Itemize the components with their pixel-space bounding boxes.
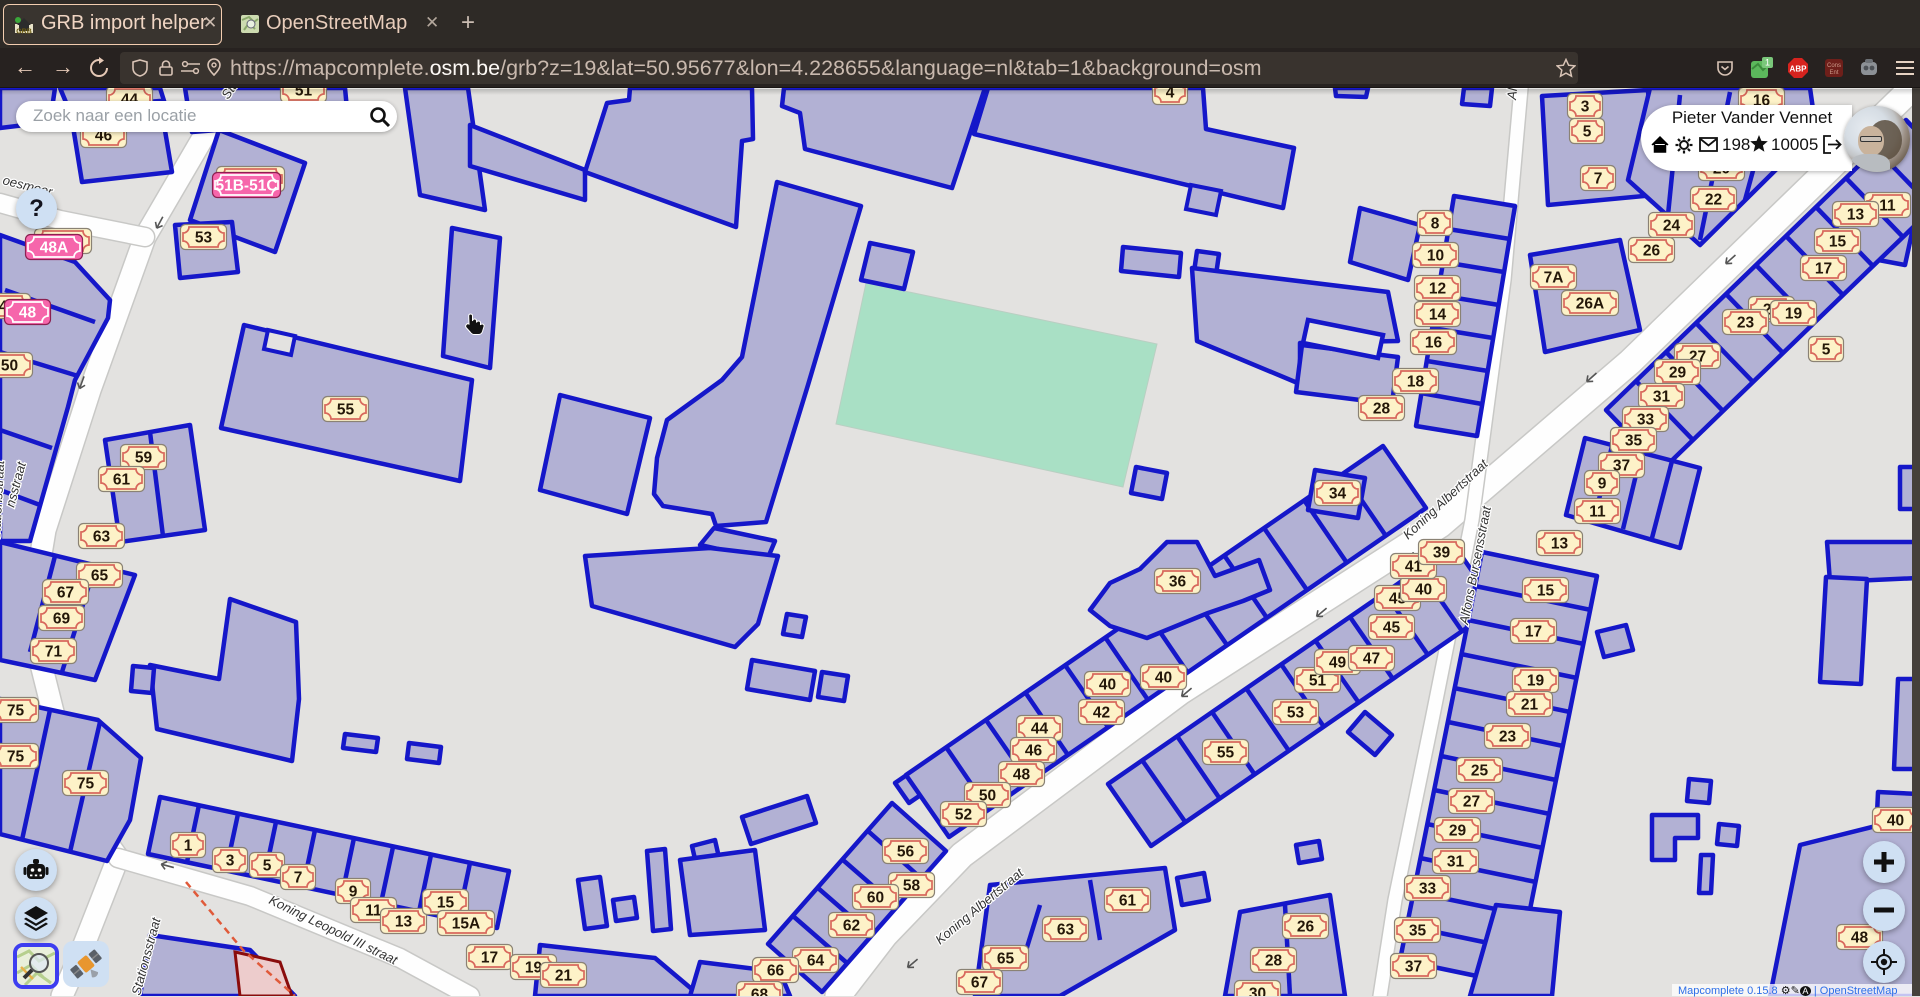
svg-text:56: 56 xyxy=(897,844,915,861)
svg-text:61: 61 xyxy=(113,472,131,489)
svg-text:13: 13 xyxy=(395,914,413,931)
svg-text:18: 18 xyxy=(1407,374,1425,391)
svg-text:22: 22 xyxy=(1705,192,1722,209)
svg-text:63: 63 xyxy=(93,529,111,546)
svg-text:50: 50 xyxy=(1,358,18,375)
svg-text:75: 75 xyxy=(77,776,95,793)
svg-text:46: 46 xyxy=(1025,743,1043,760)
svg-text:27: 27 xyxy=(1463,794,1480,811)
svg-text:29: 29 xyxy=(1449,823,1467,840)
svg-text:19: 19 xyxy=(525,960,543,977)
svg-text:30: 30 xyxy=(1249,986,1266,997)
svg-text:37: 37 xyxy=(1405,959,1422,976)
svg-text:11: 11 xyxy=(365,903,382,920)
svg-text:17: 17 xyxy=(1815,261,1832,278)
svg-text:59: 59 xyxy=(135,450,153,467)
svg-text:34: 34 xyxy=(1329,486,1347,503)
svg-text:75: 75 xyxy=(7,749,25,766)
svg-text:48: 48 xyxy=(19,305,37,322)
svg-text:11: 11 xyxy=(1879,198,1896,215)
svg-text:8: 8 xyxy=(1431,216,1440,233)
svg-text:36: 36 xyxy=(1169,574,1187,591)
svg-text:61: 61 xyxy=(1119,893,1137,910)
svg-text:9: 9 xyxy=(1598,476,1607,493)
svg-text:67: 67 xyxy=(57,585,74,602)
svg-text:52: 52 xyxy=(955,807,972,824)
svg-text:16: 16 xyxy=(1425,335,1443,352)
svg-text:45: 45 xyxy=(1383,620,1401,637)
svg-text:5: 5 xyxy=(1822,342,1831,359)
svg-text:17: 17 xyxy=(1525,624,1542,641)
svg-text:21: 21 xyxy=(1521,697,1539,714)
svg-text:65: 65 xyxy=(997,951,1015,968)
svg-text:53: 53 xyxy=(195,230,213,247)
svg-text:35: 35 xyxy=(1409,923,1427,940)
svg-text:11: 11 xyxy=(1589,504,1606,521)
svg-text:39: 39 xyxy=(1433,545,1451,562)
svg-text:26A: 26A xyxy=(1576,296,1604,313)
svg-text:66: 66 xyxy=(767,963,785,980)
svg-text:15: 15 xyxy=(1829,234,1847,251)
svg-text:23: 23 xyxy=(1499,729,1517,746)
svg-text:15A: 15A xyxy=(452,916,480,933)
svg-text:5: 5 xyxy=(263,858,272,875)
svg-text:12: 12 xyxy=(1429,281,1446,298)
svg-text:Cons: Cons xyxy=(1827,63,1841,69)
svg-text:198: 198 xyxy=(1722,135,1750,154)
svg-text:48: 48 xyxy=(1851,930,1869,947)
svg-text:44: 44 xyxy=(1031,721,1049,738)
svg-text:49: 49 xyxy=(1329,655,1347,672)
svg-text:35: 35 xyxy=(1625,433,1643,450)
svg-text:7: 7 xyxy=(1594,171,1603,188)
svg-text:31: 31 xyxy=(1447,854,1465,871)
svg-text:26: 26 xyxy=(1297,919,1315,936)
svg-text:25: 25 xyxy=(1471,763,1489,780)
svg-text:48A: 48A xyxy=(40,240,68,257)
svg-text:68: 68 xyxy=(751,987,769,997)
svg-text:28: 28 xyxy=(1373,401,1391,418)
svg-text:71: 71 xyxy=(45,644,63,661)
svg-text:40: 40 xyxy=(1415,582,1432,599)
svg-text:40: 40 xyxy=(1155,670,1172,687)
svg-text:33: 33 xyxy=(1419,881,1437,898)
svg-text:42: 42 xyxy=(1093,705,1110,722)
svg-text:60: 60 xyxy=(867,890,884,907)
svg-text:17: 17 xyxy=(481,950,498,967)
svg-text:4: 4 xyxy=(1166,88,1175,102)
svg-text:13: 13 xyxy=(1847,207,1865,224)
svg-text:55: 55 xyxy=(337,402,355,419)
svg-text:24: 24 xyxy=(1663,218,1681,235)
svg-text:Al: Al xyxy=(1504,88,1520,101)
svg-text:62: 62 xyxy=(843,918,860,935)
svg-text:53: 53 xyxy=(1287,705,1305,722)
svg-text:ABP: ABP xyxy=(1790,65,1808,74)
svg-text:Ent: Ent xyxy=(1829,70,1838,76)
svg-text:51B-51C: 51B-51C xyxy=(215,178,277,195)
svg-text:1: 1 xyxy=(1765,58,1770,68)
svg-text:26: 26 xyxy=(1643,243,1661,260)
svg-text:29: 29 xyxy=(1669,365,1687,382)
svg-text:3: 3 xyxy=(226,853,235,870)
svg-text:GRB: GRB xyxy=(16,29,32,36)
svg-text:14: 14 xyxy=(1429,307,1447,324)
svg-text:7A: 7A xyxy=(1544,270,1564,287)
svg-text:21: 21 xyxy=(555,968,573,985)
svg-text:15: 15 xyxy=(1537,583,1555,600)
svg-text:64: 64 xyxy=(807,953,825,970)
svg-text:10005: 10005 xyxy=(1771,135,1818,154)
svg-text:67: 67 xyxy=(971,975,988,992)
svg-text:58: 58 xyxy=(903,878,921,895)
svg-text:23: 23 xyxy=(1737,315,1755,332)
svg-text:48: 48 xyxy=(1013,767,1031,784)
svg-text:47: 47 xyxy=(1363,651,1380,668)
svg-text:3: 3 xyxy=(1581,99,1590,116)
svg-text:31: 31 xyxy=(1653,389,1671,406)
svg-text:5: 5 xyxy=(1583,124,1592,141)
svg-text:55: 55 xyxy=(1217,745,1235,762)
svg-text:19: 19 xyxy=(1527,673,1545,690)
svg-text:28: 28 xyxy=(1265,953,1283,970)
svg-text:51: 51 xyxy=(295,88,313,100)
svg-text:13: 13 xyxy=(1551,536,1569,553)
svg-text:65: 65 xyxy=(91,568,109,585)
svg-text:69: 69 xyxy=(53,611,71,628)
svg-text:10: 10 xyxy=(1427,248,1444,265)
svg-text:1: 1 xyxy=(184,838,193,855)
svg-text:63: 63 xyxy=(1057,922,1075,939)
svg-text:40: 40 xyxy=(1099,677,1116,694)
svg-text:19: 19 xyxy=(1785,306,1803,323)
svg-text:15: 15 xyxy=(437,895,455,912)
svg-text:40: 40 xyxy=(1887,813,1904,830)
svg-text:33: 33 xyxy=(1637,412,1655,429)
svg-text:75: 75 xyxy=(7,703,25,720)
svg-text:7: 7 xyxy=(294,870,303,887)
